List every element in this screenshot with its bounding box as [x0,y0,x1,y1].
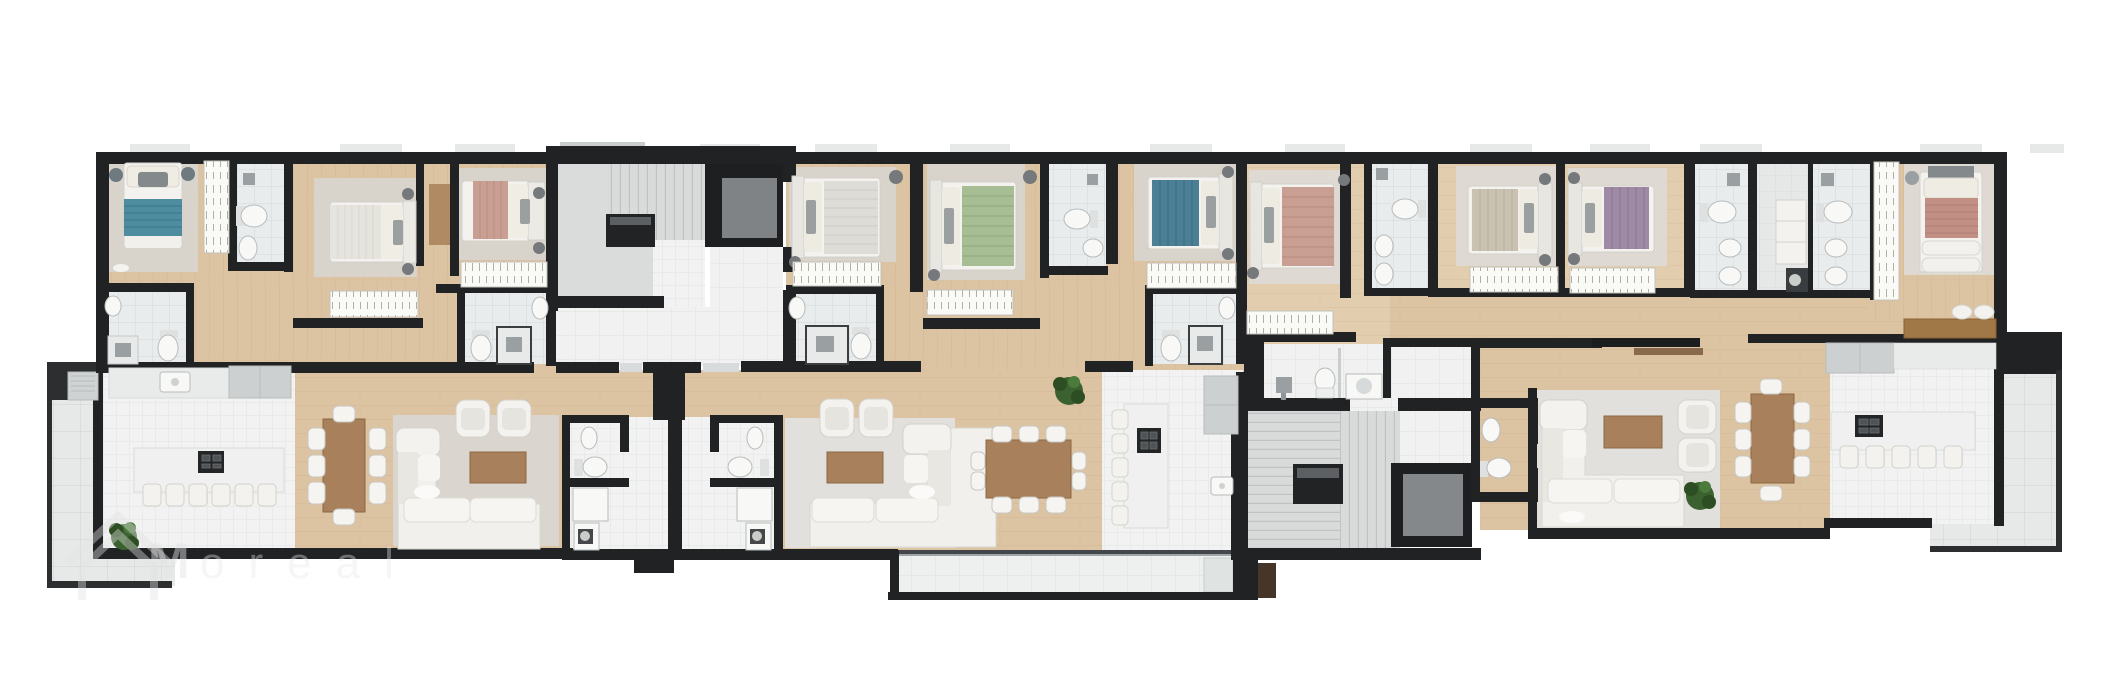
svg-text:oreal: oreal [200,539,418,588]
svg-text:M: M [148,533,190,589]
